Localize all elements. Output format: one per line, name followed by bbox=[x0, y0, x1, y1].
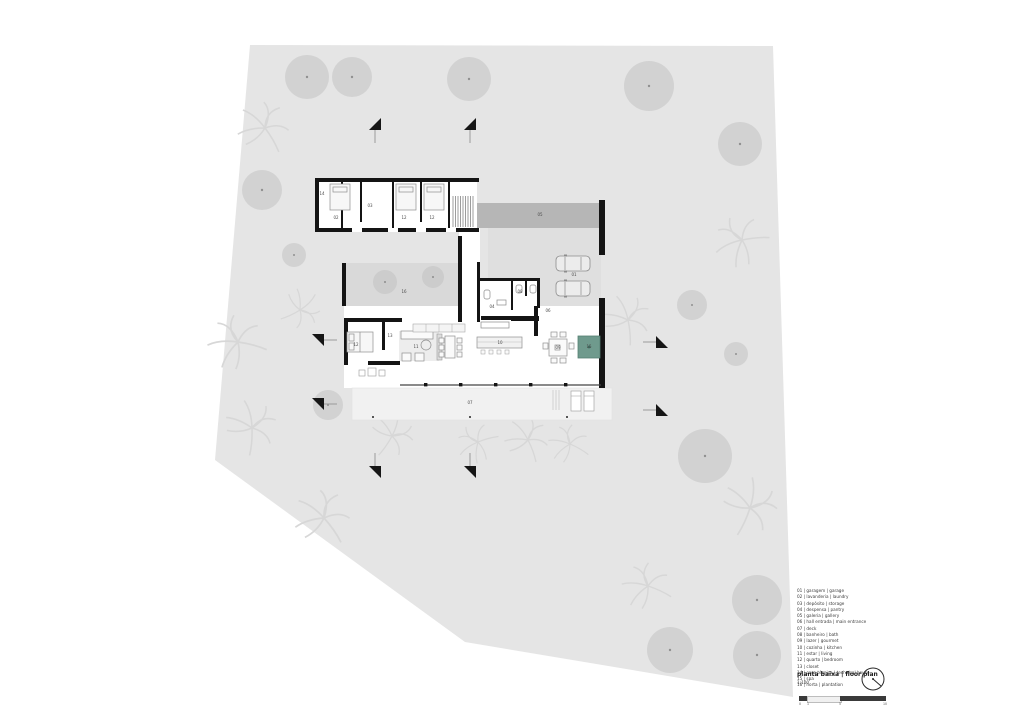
room-number-label: 04 bbox=[489, 305, 494, 309]
room-number-label: 16 bbox=[401, 290, 406, 294]
room-number-label: 12 bbox=[353, 343, 358, 347]
floor-plan-sheet: 14 02 03 12 12 05 16 01 04 08 06 13 12 1… bbox=[0, 0, 1024, 723]
living-furniture bbox=[399, 331, 442, 361]
room-number-label: 11 bbox=[413, 345, 418, 349]
room-number-label: 01 bbox=[571, 273, 576, 277]
scale-tick: 1 bbox=[807, 702, 809, 706]
north-arrow-icon bbox=[860, 666, 886, 692]
scale-bar: 0 1 5 10 bbox=[799, 696, 887, 706]
scale-bar-segment bbox=[840, 696, 886, 701]
room-number-label: 06 bbox=[545, 309, 550, 313]
room-number-label: 09 bbox=[555, 346, 560, 350]
room-number-label: 08 bbox=[517, 290, 522, 294]
room-number-label: 02 bbox=[333, 216, 338, 220]
bedroom-furniture bbox=[347, 332, 373, 352]
room-number-label: 13 bbox=[387, 334, 392, 338]
scale-tick: 10 bbox=[883, 702, 887, 706]
dining-table bbox=[439, 336, 462, 358]
room-number-label: 14 bbox=[319, 192, 324, 196]
room-number-label: 12 bbox=[429, 216, 434, 220]
scale-tick: 0 bbox=[799, 702, 801, 706]
room-number-label: 07 bbox=[467, 401, 472, 405]
bath-cluster-floor bbox=[477, 278, 540, 322]
room-number-label: 15 bbox=[586, 345, 591, 349]
scale-bar-segment bbox=[799, 696, 807, 701]
room-number-label: 12 bbox=[401, 216, 406, 220]
scale-tick: 5 bbox=[839, 702, 841, 706]
courtyard-garden bbox=[346, 263, 459, 306]
room-number-label: 10 bbox=[497, 341, 502, 345]
room-number-label: 05 bbox=[537, 213, 542, 217]
building-plan bbox=[315, 178, 612, 420]
room-number-label: 03 bbox=[367, 204, 372, 208]
scale-bar-ticks: 0 1 5 10 bbox=[799, 702, 887, 706]
